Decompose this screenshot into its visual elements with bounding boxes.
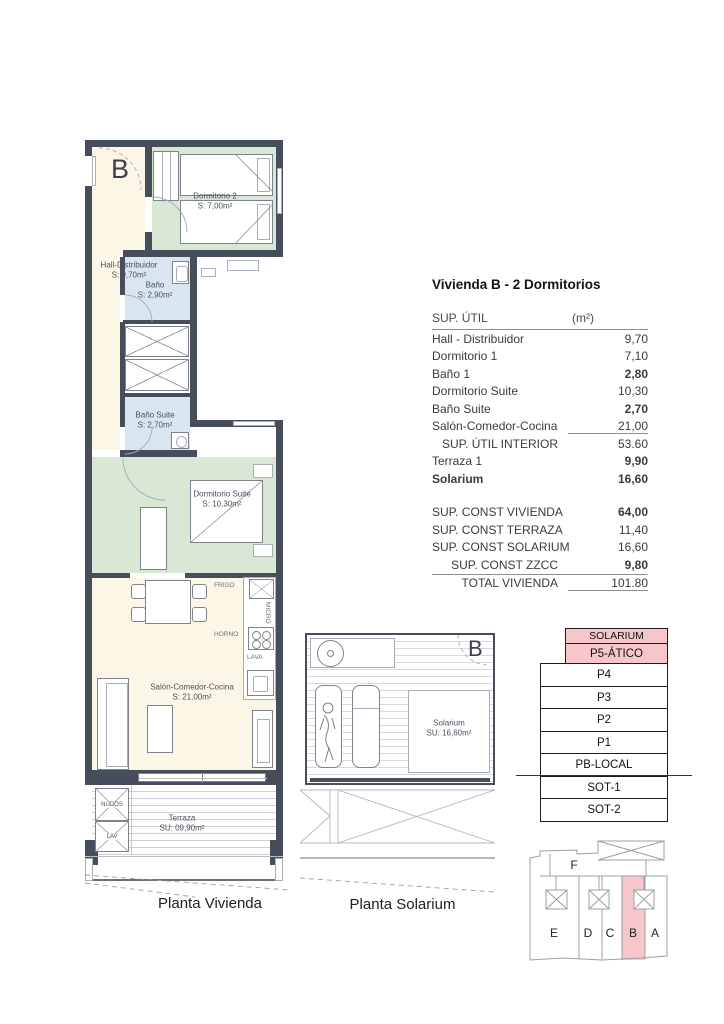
- row-label: Salón-Comedor-Cocina: [432, 419, 568, 433]
- wardrobe-line: [162, 152, 163, 200]
- door-opening: [85, 156, 92, 186]
- balcony-edge: [85, 879, 283, 881]
- chair: [192, 607, 207, 622]
- ac-unit: [227, 260, 259, 271]
- caption-planta-solarium: Planta Solarium: [345, 896, 460, 913]
- room-label-salon: Salón-Comedor-Cocina S: 21,00m²: [150, 683, 234, 704]
- row-value: 9,90: [568, 454, 648, 468]
- row-label: Baño Suite: [432, 402, 568, 416]
- terrace-closet-label: NUDOS: [95, 788, 129, 821]
- row-value: 53.60: [568, 437, 648, 451]
- room-label-dormitorio2: Dormitorio 2 S: 7,00m²: [193, 192, 237, 213]
- brace-x: [338, 790, 495, 843]
- table-row-subtotal: SUP. ÚTIL INTERIOR53.60: [432, 435, 648, 453]
- row-label: Baño 1: [432, 367, 568, 381]
- row-label: Dormitorio Suite: [432, 384, 568, 398]
- row-value: 7,10: [568, 349, 648, 363]
- row-value: 11,40: [573, 523, 648, 537]
- table-row: Baño 12,80: [432, 365, 648, 383]
- dining-table: [145, 580, 191, 624]
- ground-line: [516, 775, 692, 776]
- laundry-label-text: LAV: [106, 834, 119, 840]
- brace-posts: [330, 790, 338, 843]
- row-value: 10,30: [568, 384, 648, 398]
- burner: [262, 631, 271, 640]
- room-label-hall: Hall-Distribuidor S: 9,70m²: [101, 261, 158, 282]
- room-area: SU: 16,60m²: [427, 729, 472, 738]
- row-value: 9,80: [568, 558, 648, 572]
- block-letter-a: A: [651, 926, 659, 940]
- sink-basin: [176, 266, 188, 282]
- row-label: Terraza 1: [432, 454, 568, 468]
- wardrobe: [153, 151, 179, 201]
- unit-letter: B: [111, 154, 129, 185]
- block-letter-c: C: [606, 926, 615, 940]
- stair-cores: [546, 890, 654, 909]
- block-letter-e: E: [550, 926, 558, 940]
- level-p1: P1: [540, 731, 668, 755]
- table-header: SUP. ÚTIL (m²): [432, 311, 648, 330]
- room-area: S: 2,70m²: [138, 421, 173, 430]
- room-area: S: 21,00m²: [172, 693, 211, 702]
- room-name: Baño: [138, 281, 173, 291]
- sink: [172, 261, 189, 284]
- room-name: Salón-Comedor-Cocina: [150, 683, 234, 693]
- balcony-cap: [275, 858, 283, 881]
- level-p3: P3: [540, 686, 668, 710]
- wall-segment: [120, 450, 197, 457]
- row-value: 21,00: [568, 419, 648, 434]
- wall-segment: [145, 147, 152, 197]
- cooktop: [248, 627, 274, 650]
- level-p4: P4: [540, 663, 668, 687]
- chair: [192, 584, 207, 599]
- table-gap: [432, 488, 648, 504]
- lounger-backrest: [353, 708, 379, 709]
- room-label-solarium: Solarium SU: 16,60m²: [427, 719, 472, 740]
- room-label-bano-suite: Baño Suite S: 2,70m²: [135, 411, 174, 432]
- building-levels: SOLARIUM P5-ÁTICO P4 P3 P2 P1 PB-LOCAL S…: [540, 628, 668, 822]
- room-label-dormitorio-suite: Dormitorio Suite S: 10,30m²: [193, 490, 250, 511]
- level-pb-local: PB-LOCAL: [540, 753, 668, 777]
- closet: [125, 326, 189, 357]
- room-area: S: 7,00m²: [198, 202, 233, 211]
- row-label: SUP. CONST VIVIENDA: [432, 505, 573, 519]
- sun-lounger: [352, 685, 380, 768]
- level-p2: P2: [540, 708, 668, 732]
- row-label: Solarium: [432, 472, 568, 486]
- row-value: 9,70: [568, 332, 648, 346]
- room-name: Baño Suite: [135, 411, 174, 421]
- terrace-divider: [131, 785, 132, 855]
- table-row: Baño Suite2,70: [432, 400, 648, 418]
- oven-label: HORNO: [214, 631, 238, 638]
- row-label: Dormitorio 1: [432, 349, 568, 363]
- terrace-laundry-label: LAV: [95, 821, 129, 852]
- header-label: SUP. ÚTIL: [432, 311, 488, 325]
- room-area: S: 9,70m²: [112, 271, 147, 280]
- kitchen-sink: [247, 670, 274, 696]
- burner: [262, 640, 271, 649]
- sofa: [97, 678, 129, 770]
- dashed-line: [85, 875, 290, 890]
- highlighted-block-b: [622, 876, 645, 960]
- sofa-seat: [106, 683, 128, 767]
- wardrobe-line: [170, 152, 171, 200]
- sliding-window: [138, 773, 266, 782]
- sink-basin: [253, 676, 268, 692]
- wall-segment: [190, 257, 197, 420]
- block-letter-f: F: [570, 858, 577, 872]
- sink: [171, 432, 189, 449]
- block-letter-b: B: [629, 926, 637, 940]
- row-value: 101.80: [568, 576, 648, 591]
- table-row-summary: SUP. CONST SOLARIUM16,60: [432, 539, 648, 557]
- table-row: Salón-Comedor-Cocina21,00: [432, 418, 648, 436]
- cabinet: [252, 710, 273, 768]
- brace-rails: [300, 790, 495, 843]
- pillow: [257, 204, 270, 240]
- row-value: 16,60: [568, 472, 648, 486]
- nightstand: [253, 544, 273, 557]
- window: [277, 168, 282, 214]
- pillow: [257, 158, 270, 192]
- level-sot-2: SOT-2: [540, 798, 668, 822]
- table-row: Hall - Distribuidor9,70: [432, 330, 648, 348]
- burner: [252, 631, 261, 640]
- table-row-total: TOTAL VIVIENDA101.80: [432, 574, 648, 593]
- level-p5-atico: P5-ÁTICO: [565, 643, 668, 665]
- table-row: Dormitorio 17,10: [432, 348, 648, 366]
- plan-solarium: B Solarium SU: 16,60m²: [300, 630, 505, 900]
- window: [233, 421, 275, 426]
- wall-segment: [123, 320, 190, 324]
- block-f-outline: [540, 854, 667, 876]
- cabinet-inner: [257, 719, 270, 763]
- room-name: Solarium: [427, 719, 472, 729]
- sun-lounger: [315, 685, 342, 768]
- row-label: SUP. CONST TERRAZA: [432, 523, 573, 537]
- closet: [125, 359, 189, 391]
- room-label-bano: Baño S: 2,90m²: [138, 281, 173, 302]
- caption-planta-vivienda: Planta Vivienda: [145, 895, 275, 912]
- table-row-summary: SUP. CONST TERRAZA11,40: [432, 521, 648, 539]
- table-row: Dormitorio Suite10,30: [432, 383, 648, 401]
- row-value: 2,70: [568, 402, 648, 416]
- table-row-summary: SUP. CONST VIVIENDA64,00: [432, 504, 648, 522]
- door-leaf: [92, 156, 96, 186]
- row-value: 2,80: [568, 367, 648, 381]
- microwave-label: MICRO: [264, 602, 271, 624]
- balcony-cap: [85, 858, 93, 881]
- chair: [131, 607, 146, 622]
- wall-segment: [123, 393, 190, 397]
- row-label: Hall - Distribuidor: [432, 332, 568, 346]
- closet-label-text: NUDOS: [100, 802, 124, 808]
- dashed-line: [300, 878, 495, 892]
- brace-left: [300, 790, 330, 843]
- floorplan-sheet: { "plan_vivienda": { "unit_label": "B", …: [0, 0, 724, 1024]
- wall-segment: [276, 785, 283, 843]
- balcony-edge: [85, 856, 283, 857]
- wall-segment: [123, 250, 283, 257]
- row-label: SUP. CONST SOLARIUM: [432, 540, 580, 554]
- row-value: 16,60: [580, 540, 648, 554]
- sink-basin: [176, 436, 187, 448]
- burner: [252, 640, 261, 649]
- level-sot-1: SOT-1: [540, 776, 668, 800]
- wall-segment: [85, 140, 283, 147]
- wall-segment: [145, 232, 152, 250]
- wall-segment: [276, 420, 283, 770]
- room-name: Dormitorio 2: [193, 192, 237, 202]
- crossed-block: [598, 841, 664, 860]
- header-unit: (m²): [572, 311, 594, 325]
- substructure-braces: [300, 790, 495, 843]
- plan-vivienda: B FRIGO MICRO HORNO LAVA: [85, 140, 290, 905]
- window-rail: [139, 778, 267, 779]
- ac-unit: [201, 268, 216, 277]
- row-value: 64,00: [573, 505, 648, 519]
- room-area: S: 10,30m²: [202, 500, 241, 509]
- table-row-summary: SUP. CONST ZZCC9,80: [432, 556, 648, 574]
- room-name: Terraza: [160, 814, 205, 824]
- nightstand: [253, 464, 273, 478]
- room-area: SU: 09,90m²: [160, 824, 205, 833]
- site-key-plan: F E D C B A: [522, 838, 717, 978]
- chair: [131, 584, 146, 599]
- wardrobe: [140, 507, 167, 570]
- wall-segment: [85, 147, 92, 770]
- unit-letter: B: [468, 636, 483, 662]
- deck-rail: [310, 778, 490, 782]
- table-row: Terraza 19,90: [432, 453, 648, 471]
- row-label: TOTAL VIVIENDA: [432, 576, 568, 590]
- coffee-table: [147, 705, 173, 753]
- row-label: SUP. CONST ZZCC: [432, 558, 568, 572]
- dishwasher-label: LAVA: [247, 654, 263, 661]
- room-area: S: 2,90m²: [138, 291, 173, 300]
- table-title: Vivienda B - 2 Dormitorios: [432, 277, 648, 292]
- room-name: Dormitorio Suite: [193, 490, 250, 500]
- table-row: Solarium16,60: [432, 470, 648, 488]
- surface-table: Vivienda B - 2 Dormitorios SUP. ÚTIL (m²…: [432, 277, 648, 592]
- fridge: [249, 579, 274, 599]
- row-label: SUP. ÚTIL INTERIOR: [432, 437, 568, 451]
- wall-segment: [92, 573, 130, 578]
- room-name: Hall-Distribuidor: [101, 261, 158, 271]
- room-label-terraza: Terraza SU: 09,90m²: [160, 814, 205, 835]
- block-letter-d: D: [584, 926, 593, 940]
- fridge-label: FRIGO: [214, 582, 235, 589]
- solarium-table-center: [327, 650, 334, 657]
